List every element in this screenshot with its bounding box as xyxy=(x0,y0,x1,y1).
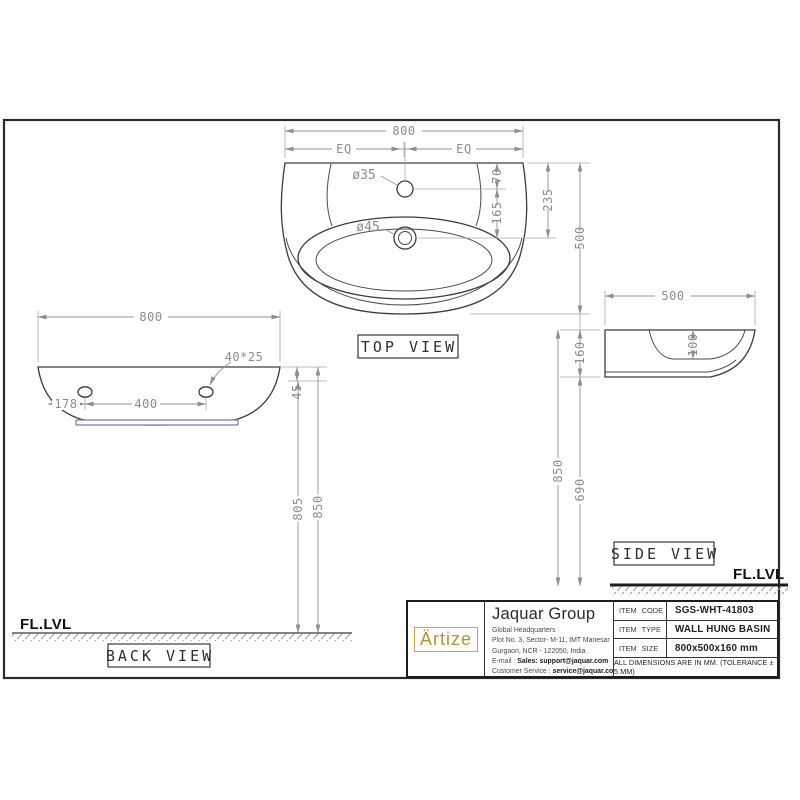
item-type-label: ITEM TYPE xyxy=(614,621,667,639)
floor-level-label-side: FL.LVL xyxy=(733,566,785,583)
item-size-label: ITEM SIZE xyxy=(614,639,667,657)
sheet-border xyxy=(4,120,779,678)
dim-top-to-hole: 45 xyxy=(290,384,304,399)
brand-cell: Ärtize xyxy=(408,602,485,676)
side-view-label: SIDE VIEW xyxy=(611,545,719,563)
deck-line-right xyxy=(476,164,481,226)
dim-top-to-tap: 70 xyxy=(490,168,504,183)
dim-bowl-depth: 100 xyxy=(686,333,700,356)
basin-outline-side xyxy=(605,330,755,377)
ground-hatch-side xyxy=(612,587,788,594)
deck-line-left xyxy=(327,164,332,226)
dim-eq-right: EQ xyxy=(456,142,471,156)
email-address: Sales: support@jaquar.com xyxy=(517,658,608,665)
fixing-hole-left xyxy=(78,387,92,397)
back-view-label: BACK VIEW xyxy=(106,647,214,665)
item-code-value: SGS-WHT-41803 xyxy=(667,605,777,616)
dim-back-width: 800 xyxy=(139,310,162,324)
label-slot-size: 40*25 xyxy=(225,350,264,364)
floor-level-label-back: FL.LVL xyxy=(20,616,72,633)
address-line-1: Global Headquarters xyxy=(492,626,608,636)
fixing-hole-right xyxy=(199,387,213,397)
tolerance-row: ALL DIMENSIONS ARE IN MM. (TOLERANCE ± 5… xyxy=(614,658,777,676)
drain-hole-inner xyxy=(399,232,412,245)
back-view: 800 40*25 178 400 45 805 xyxy=(12,310,352,667)
item-size-value: 800x500x160 mm xyxy=(667,643,777,654)
dim-top-width: 800 xyxy=(392,124,415,138)
address-line-2: Plot No. 3, Sector- M-11, IMT Manesar xyxy=(492,636,608,646)
gasket-strip xyxy=(76,420,238,425)
basin-bottom-inner-side xyxy=(605,360,736,372)
tap-hole xyxy=(397,181,413,197)
dim-bottom-to-floor: 690 xyxy=(573,478,587,501)
dim-edge-to-hole: 178 xyxy=(54,397,77,411)
drain-hole-outer xyxy=(394,227,416,249)
drawing-sheet: 800 EQ EQ ø35 ø45 70 xyxy=(0,0,800,800)
dim-tap-to-drain: 165 xyxy=(490,201,504,224)
dim-hole-spacing: 400 xyxy=(134,397,157,411)
email-line: E-mail : Sales: support@jaquar.com xyxy=(492,657,608,667)
top-view: 800 EQ EQ ø35 ø45 70 xyxy=(281,124,590,358)
address-line-3: Gurgaon, NCR - 122050, India xyxy=(492,647,608,657)
dim-eq-left: EQ xyxy=(336,142,351,156)
company-name: Jaquar Group xyxy=(492,605,608,624)
dim-side-height: 160 xyxy=(573,341,587,364)
label-tap-hole: ø35 xyxy=(352,168,375,183)
item-code-row: ITEM CODE SGS-WHT-41803 xyxy=(614,602,777,621)
service-line: Customer Service : service@jaquar.com xyxy=(492,667,608,676)
dim-side-top-to-floor: 850 xyxy=(551,459,565,482)
item-size-row: ITEM SIZE 800x500x160 mm xyxy=(614,639,777,658)
item-type-value: WALL HUNG BASIN xyxy=(667,624,777,635)
dim-back-top-to-floor: 850 xyxy=(311,495,325,518)
top-view-label: TOP VIEW xyxy=(361,338,457,356)
artize-logo: Ärtize xyxy=(414,627,478,652)
service-email: service@jaquar.com xyxy=(553,668,614,675)
dim-depth: 500 xyxy=(573,226,587,249)
tolerance-note: ALL DIMENSIONS ARE IN MM. (TOLERANCE ± 5… xyxy=(614,658,777,676)
dim-hole-to-floor: 805 xyxy=(291,497,305,520)
side-view: 500 100 160 690 850 SIDE VIEW FL.LVL xyxy=(551,289,788,594)
dim-side-depth: 500 xyxy=(661,289,684,303)
back-view-dimensions: 800 40*25 178 400 45 805 xyxy=(38,310,327,633)
basin-outline-back xyxy=(38,367,280,425)
item-table: ITEM CODE SGS-WHT-41803 ITEM TYPE WALL H… xyxy=(614,602,777,676)
drawing-svg: 800 EQ EQ ø35 ø45 70 xyxy=(0,0,800,800)
company-cell: Jaquar Group Global Headquarters Plot No… xyxy=(485,602,614,676)
dim-top-to-drain: 235 xyxy=(541,188,555,211)
title-block: Ärtize Jaquar Group Global Headquarters … xyxy=(406,600,779,678)
item-code-label: ITEM CODE xyxy=(614,602,667,620)
item-type-row: ITEM TYPE WALL HUNG BASIN xyxy=(614,621,777,640)
label-drain-hole: ø45 xyxy=(356,220,379,235)
ground-hatch-back xyxy=(12,634,352,641)
top-view-dimensions: 800 EQ EQ ø35 ø45 70 xyxy=(285,124,590,330)
